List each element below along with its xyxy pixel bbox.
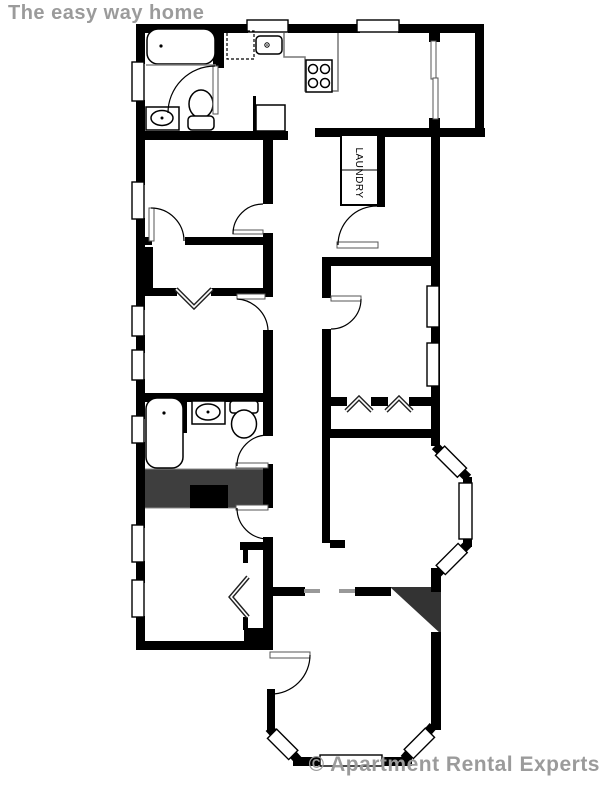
door-living-room	[270, 652, 310, 694]
sliding-door	[431, 41, 438, 119]
second-sink	[192, 401, 225, 424]
stove	[306, 60, 332, 92]
second-bathtub	[146, 398, 183, 468]
dishwasher	[227, 31, 254, 59]
bathtub	[146, 29, 216, 65]
corner-wall-triangle	[390, 587, 441, 634]
laundry-closet: LAUNDRY	[341, 135, 378, 205]
door-bedroom1-hall	[233, 204, 263, 234]
door-laundry	[337, 206, 378, 248]
toilet	[188, 90, 214, 130]
staircase	[142, 469, 268, 508]
floor-plan-page: The easy way home	[0, 0, 612, 792]
door-bedroom1-closet	[149, 208, 184, 241]
kitchen-sink	[256, 36, 282, 54]
refrigerator	[256, 105, 285, 131]
floor-plan-drawing: LAUNDRY	[0, 0, 612, 792]
watermark: © Apartment Rental Experts	[309, 753, 600, 777]
door-bedroom2	[237, 294, 268, 330]
door-bathroom-2	[236, 435, 268, 468]
door-bedroom3	[331, 296, 361, 329]
laundry-label: LAUNDRY	[353, 147, 364, 198]
bifold-doors	[176, 289, 412, 617]
bathroom-sink	[146, 107, 179, 130]
door-bedroom4	[236, 505, 268, 539]
second-toilet	[230, 401, 258, 438]
